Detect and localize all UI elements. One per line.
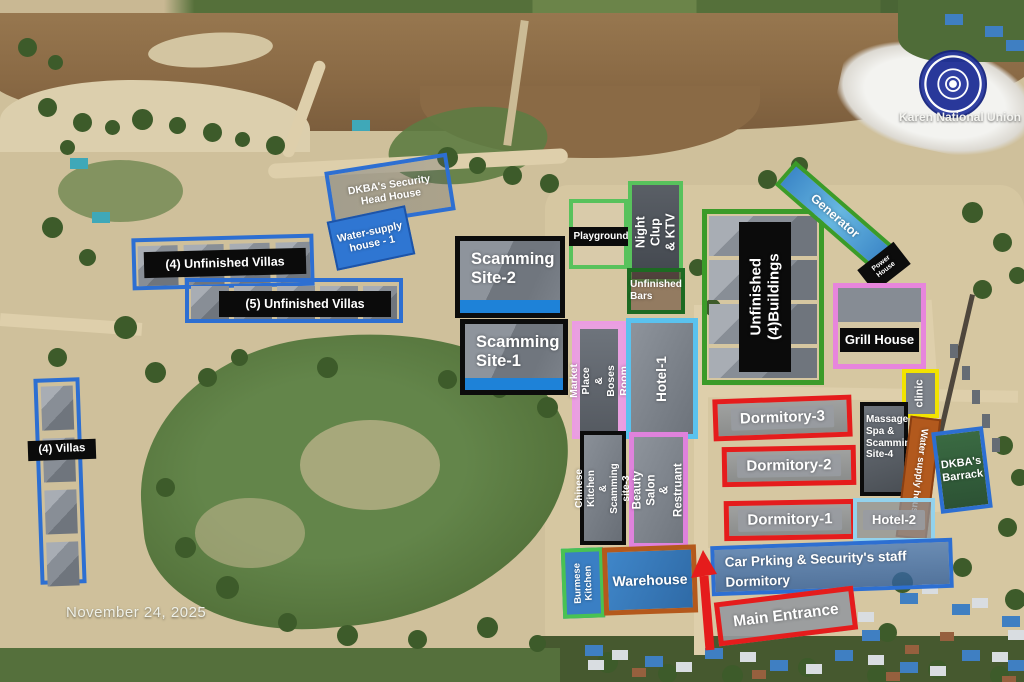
chinese-kitchen-scamming-site-3-label: Chinese Kitchen & Scamming site-3 xyxy=(574,463,633,514)
unfinished-4-buildings-label: Unfinished (4)Buildings xyxy=(747,254,782,341)
dormitory-3-box: Dormitory-3 xyxy=(712,395,852,442)
night-club-ktv-label: Night Clup & KTV xyxy=(633,209,677,256)
playground-label: Playground xyxy=(569,227,633,246)
grill-house-box: Grill House xyxy=(833,283,926,369)
car-parking-security-staff-dormitory-label: Car Prking & Security's staff Dormitory xyxy=(724,546,907,591)
knu-emblem-icon xyxy=(919,50,987,118)
dkba-security-head-house-label: DKBA's Security Head House xyxy=(347,172,433,209)
unfinished-villas-5-label: (5) Unfinished Villas xyxy=(219,291,391,317)
village-strip-left xyxy=(0,648,560,682)
scamming-site-2-box: Scamming Site-2 xyxy=(455,236,565,318)
dormitory-1-label: Dormitory-1 xyxy=(738,508,841,531)
dormitory-2-label: Dormitory-2 xyxy=(737,454,840,477)
hotel-1-label: Hotel-1 xyxy=(654,356,670,402)
worn-dirt-patch xyxy=(300,420,440,510)
dkba-barrack-label: DKBA's Barrack xyxy=(940,455,984,486)
dirt-road xyxy=(0,313,142,336)
hotel-2-box: Hotel-2 xyxy=(853,498,935,542)
parked-trucks xyxy=(0,0,8,14)
main-entrance-arrow xyxy=(688,548,728,658)
main-entrance-label: Main Entrance xyxy=(732,600,839,631)
credit-text: Karen National Union xyxy=(896,110,1024,124)
unfinished-bars-label: Unfinished Bars xyxy=(630,279,682,303)
market-place-boses-room-label: Market Place & Boses Room xyxy=(568,362,630,400)
villa-roof xyxy=(46,541,80,586)
date-text: November 24, 2025 xyxy=(66,604,206,621)
beauty-salon-restaurant-box: Beauty Salon & Restruant xyxy=(629,432,688,548)
annotated-satellite-map: DKBA's Security Head House Water-supply … xyxy=(0,0,1024,682)
market-place-boses-room-box: Market Place & Boses Room xyxy=(572,321,626,439)
dormitory-2-box: Dormitory-2 xyxy=(722,445,857,487)
building-wall-band xyxy=(460,300,560,313)
villa-roof xyxy=(44,489,78,534)
villas-4-box: (4) Villas xyxy=(33,377,86,584)
burmese-kitchen-label: Burmese Kitchen xyxy=(571,562,595,603)
scamming-site-2-label: Scamming Site-2 xyxy=(471,250,554,289)
unfinished-4-buildings-box: Unfinished (4)Buildings xyxy=(702,209,824,385)
hotel-2-label: Hotel-2 xyxy=(863,510,925,529)
grass-patch-left xyxy=(58,160,183,222)
clinic-label: clinic xyxy=(914,379,927,407)
label-panel: Unfinished (4)Buildings xyxy=(739,222,791,372)
burmese-kitchen-box: Burmese Kitchen xyxy=(561,547,605,618)
unfinished-bars-box: Unfinished Bars xyxy=(627,268,685,314)
dkba-barrack-box: DKBA's Barrack xyxy=(931,426,993,514)
unfinished-villas-5-box: (5) Unfinished Villas xyxy=(185,278,403,323)
building-wall-band xyxy=(465,378,563,390)
villa-roof xyxy=(41,385,75,430)
warehouse-label: Warehouse xyxy=(612,570,687,589)
label-panel: Market Place & Boses Room xyxy=(580,329,618,433)
massage-spa-scamming-site-4-box: Massage Spa & Scamming Site-4 xyxy=(860,402,908,496)
scamming-site-1-label: Scamming Site-1 xyxy=(476,333,559,372)
playground-box: Playground xyxy=(569,199,628,269)
villas-4-label: (4) Villas xyxy=(28,439,97,461)
water-supply-house-1-label: Water-supply house - 1 xyxy=(336,219,406,257)
dormitory-1-box: Dormitory-1 xyxy=(724,499,857,541)
unfinished-villas-4-label: (4) Unfinished Villas xyxy=(144,248,307,278)
dormitory-3-label: Dormitory-3 xyxy=(731,405,835,430)
worn-dirt-patch xyxy=(195,498,305,568)
village-strip-right xyxy=(540,636,1024,682)
power-house-label: Power House xyxy=(871,254,897,279)
beauty-salon-restaurant-label: Beauty Salon & Restruant xyxy=(631,463,685,517)
chinese-kitchen-scamming-site-3-box: Chinese Kitchen & Scamming site-3 xyxy=(580,431,626,545)
hotel-1-box: Hotel-1 xyxy=(626,318,698,439)
scamming-site-1-box: Scamming Site-1 xyxy=(460,319,568,395)
grill-house-label: Grill House xyxy=(840,328,919,352)
warehouse-box: Warehouse xyxy=(602,544,698,615)
